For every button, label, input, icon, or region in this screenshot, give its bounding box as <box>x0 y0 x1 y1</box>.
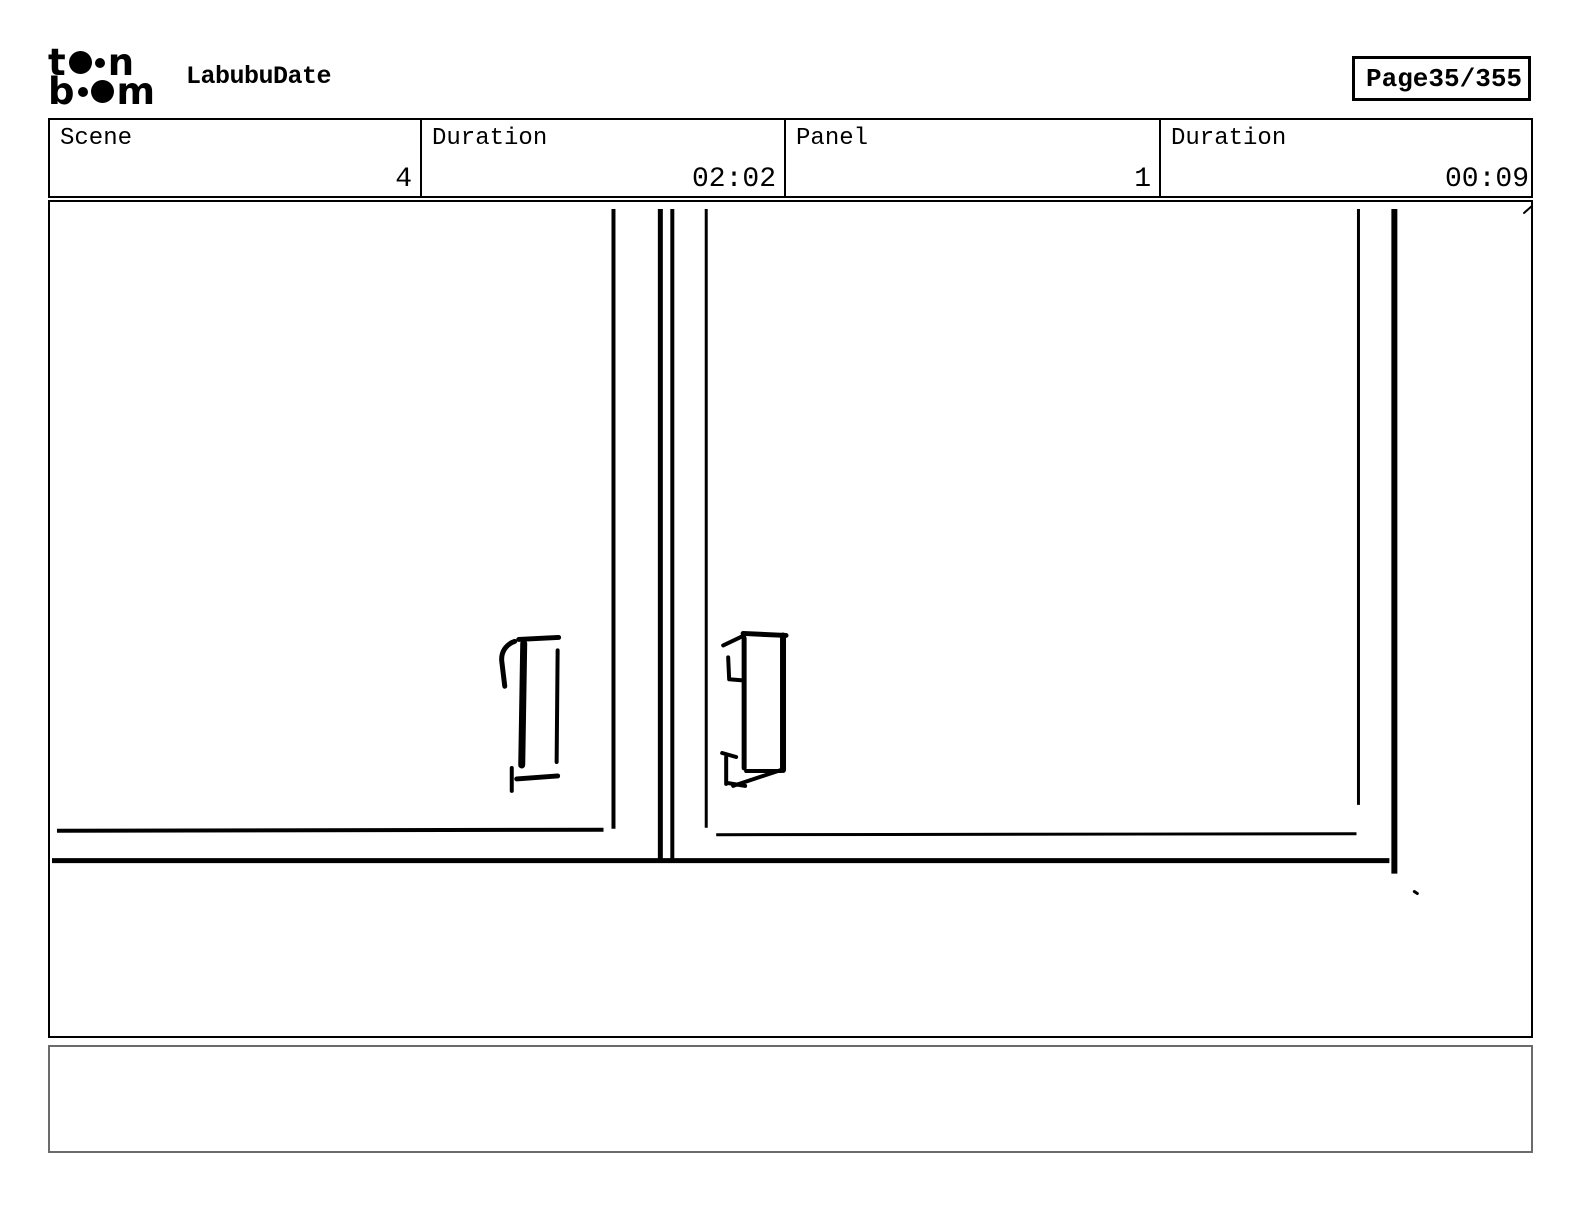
panel-duration-label: Duration <box>1171 125 1286 152</box>
scene-value: 4 <box>395 164 412 195</box>
project-title: LabubuDate <box>186 62 331 91</box>
logo-letter: b <box>48 77 75 106</box>
panel-duration-cell: Duration 00:09 <box>1159 120 1531 196</box>
scene-duration-label: Duration <box>432 125 547 152</box>
scene-duration-cell: Duration 02:02 <box>420 120 784 196</box>
scene-label: Scene <box>60 125 132 152</box>
storyboard-page: t n b m LabubuDate Page 35/355 Scene 4 D… <box>0 0 1584 1224</box>
info-bar: Scene 4 Duration 02:02 Panel 1 Duration … <box>48 118 1533 198</box>
caption-box <box>48 1045 1533 1153</box>
logo-small-dot-icon <box>95 58 105 68</box>
page-number: 35/355 <box>1428 64 1522 94</box>
scene-duration-value: 02:02 <box>692 164 776 195</box>
panel-frame <box>48 200 1533 1038</box>
panel-duration-value: 00:09 <box>1445 164 1529 195</box>
page-label: Page <box>1366 64 1428 94</box>
panel-label: Panel <box>796 125 868 152</box>
scene-cell: Scene 4 <box>50 120 420 196</box>
logo-letter: m <box>117 77 156 106</box>
logo-big-dot-icon <box>91 80 114 103</box>
panel-cell: Panel 1 <box>784 120 1159 196</box>
page-indicator: Page 35/355 <box>1352 56 1531 101</box>
toonboom-logo: t n b m <box>48 48 155 106</box>
logo-small-dot-icon <box>78 87 88 97</box>
panel-value: 1 <box>1134 164 1151 195</box>
logo-row-bottom: b m <box>48 77 155 106</box>
panel-sketch <box>50 202 1531 1036</box>
